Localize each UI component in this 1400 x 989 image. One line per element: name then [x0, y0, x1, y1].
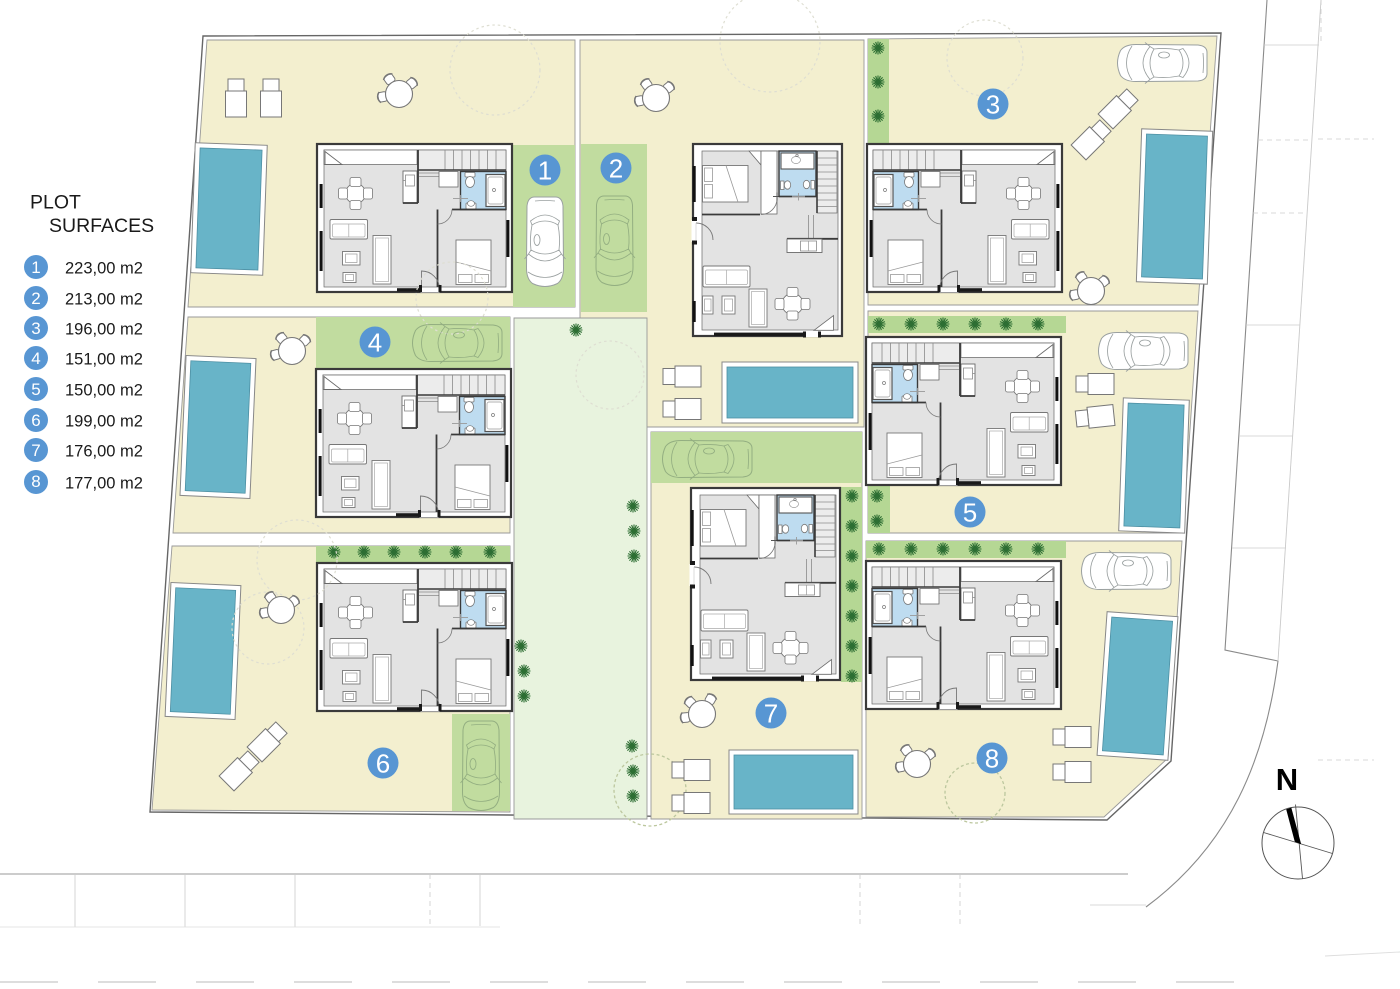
svg-text:196,00 m2: 196,00 m2	[65, 321, 143, 339]
svg-text:7: 7	[31, 441, 40, 460]
svg-text:8: 8	[31, 472, 40, 491]
svg-text:2: 2	[31, 289, 40, 308]
svg-text:3: 3	[986, 90, 1000, 120]
svg-text:6: 6	[376, 749, 390, 779]
svg-text:7: 7	[764, 699, 778, 729]
svg-text:5: 5	[963, 498, 977, 528]
svg-text:1: 1	[31, 258, 40, 277]
svg-text:151,00 m2: 151,00 m2	[65, 351, 143, 369]
svg-text:4: 4	[31, 349, 40, 368]
svg-text:199,00 m2: 199,00 m2	[65, 413, 143, 431]
svg-text:177,00 m2: 177,00 m2	[65, 475, 143, 493]
svg-text:176,00 m2: 176,00 m2	[65, 443, 143, 461]
svg-text:SURFACES: SURFACES	[49, 215, 154, 237]
svg-text:5: 5	[31, 380, 40, 399]
svg-text:2: 2	[609, 154, 623, 184]
svg-text:PLOT: PLOT	[30, 192, 81, 214]
svg-text:8: 8	[985, 744, 999, 774]
svg-text:213,00 m2: 213,00 m2	[65, 291, 143, 309]
svg-text:1: 1	[538, 156, 552, 186]
svg-text:4: 4	[368, 328, 382, 358]
svg-text:223,00 m2: 223,00 m2	[65, 260, 143, 278]
svg-text:150,00 m2: 150,00 m2	[65, 382, 143, 400]
svg-text:N: N	[1276, 762, 1298, 797]
svg-text:6: 6	[31, 411, 40, 430]
svg-text:3: 3	[31, 319, 40, 338]
